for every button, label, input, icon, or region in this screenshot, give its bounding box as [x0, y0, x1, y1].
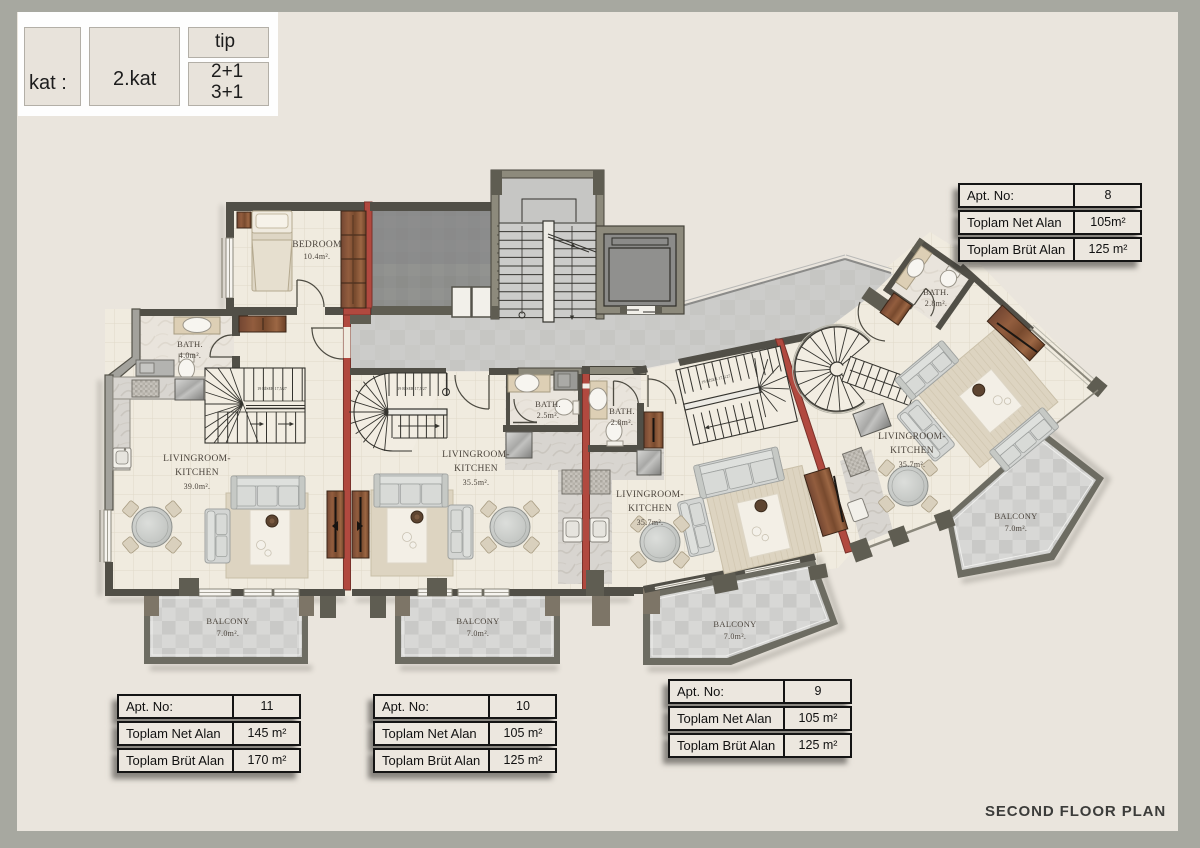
- svg-text:2.8m².: 2.8m².: [611, 418, 633, 427]
- svg-text:BALCONY: BALCONY: [994, 511, 1037, 521]
- svg-text:BALCONY: BALCONY: [206, 616, 249, 626]
- svg-text:LIVINGROOM-: LIVINGROOM-: [442, 450, 510, 460]
- svg-text:BATH.: BATH.: [609, 406, 635, 416]
- svg-text:7.0m².: 7.0m².: [1005, 524, 1027, 533]
- svg-text:7.0m².: 7.0m².: [724, 632, 746, 641]
- svg-text:39.0m².: 39.0m².: [184, 482, 211, 491]
- svg-text:KITCHEN: KITCHEN: [890, 446, 934, 456]
- svg-text:2.5m².: 2.5m².: [537, 411, 559, 420]
- svg-text:2.8m².: 2.8m².: [925, 299, 947, 308]
- svg-text:LIVINGROOM-: LIVINGROOM-: [878, 432, 946, 442]
- svg-text:7.0m².: 7.0m².: [467, 629, 489, 638]
- svg-text:35.5m².: 35.5m².: [463, 478, 490, 487]
- svg-text:LIVINGROOM-: LIVINGROOM-: [616, 490, 684, 500]
- svg-text:KITCHEN: KITCHEN: [454, 464, 498, 474]
- svg-text:KITCHEN: KITCHEN: [628, 504, 672, 514]
- svg-text:BATH.: BATH.: [535, 399, 561, 409]
- svg-text:4.0m².: 4.0m².: [179, 351, 201, 360]
- svg-text:7.0m².: 7.0m².: [217, 629, 239, 638]
- svg-text:BEDROOM: BEDROOM: [292, 240, 342, 250]
- svg-text:BATH.: BATH.: [923, 287, 949, 297]
- svg-text:BATH.: BATH.: [177, 339, 203, 349]
- svg-text:BALCONY: BALCONY: [713, 619, 756, 629]
- svg-text:35.7m².: 35.7m².: [899, 460, 926, 469]
- svg-text:10.4m².: 10.4m².: [304, 252, 331, 261]
- svg-text:35.7m².: 35.7m².: [637, 518, 664, 527]
- svg-text:BALCONY: BALCONY: [456, 616, 499, 626]
- svg-text:KITCHEN: KITCHEN: [175, 468, 219, 478]
- svg-text:LIVINGROOM-: LIVINGROOM-: [163, 454, 231, 464]
